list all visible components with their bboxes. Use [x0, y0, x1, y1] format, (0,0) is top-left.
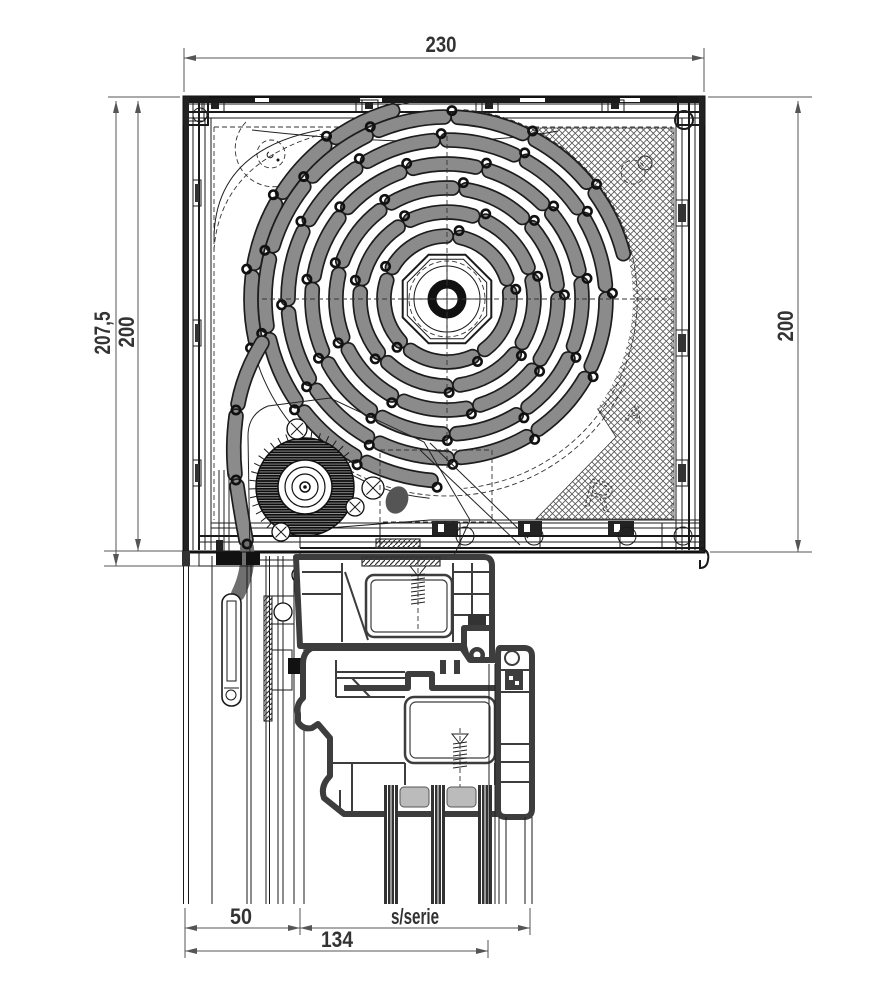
svg-text:134: 134: [321, 927, 354, 952]
svg-text:200: 200: [114, 317, 139, 348]
svg-text:207,5: 207,5: [90, 312, 115, 355]
svg-text:200: 200: [773, 311, 798, 342]
svg-text:50: 50: [230, 904, 252, 929]
svg-text:230: 230: [426, 32, 457, 57]
svg-text:s/serie: s/serie: [391, 904, 439, 929]
